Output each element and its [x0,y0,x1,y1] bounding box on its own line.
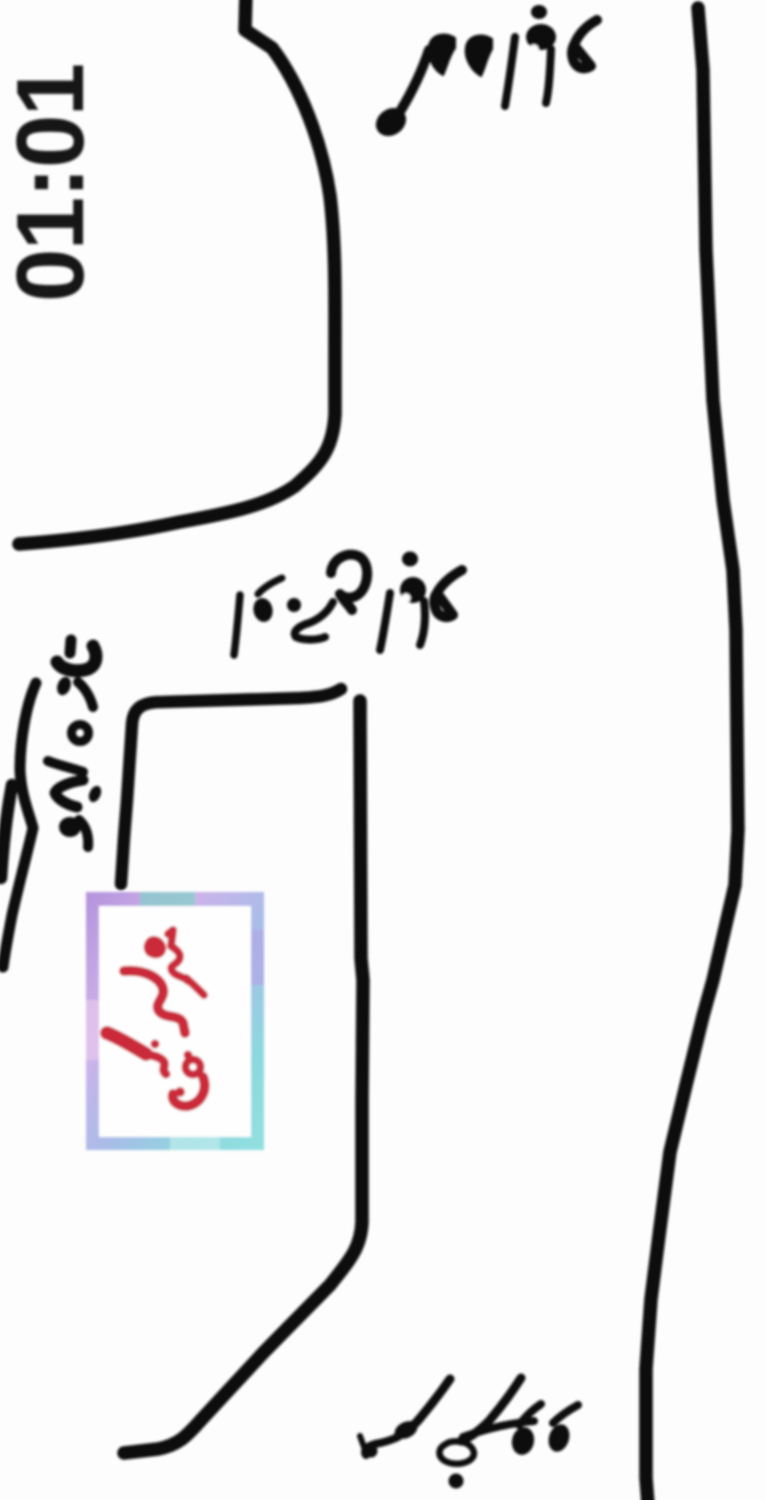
svg-text:01:01: 01:01 [0,64,104,302]
